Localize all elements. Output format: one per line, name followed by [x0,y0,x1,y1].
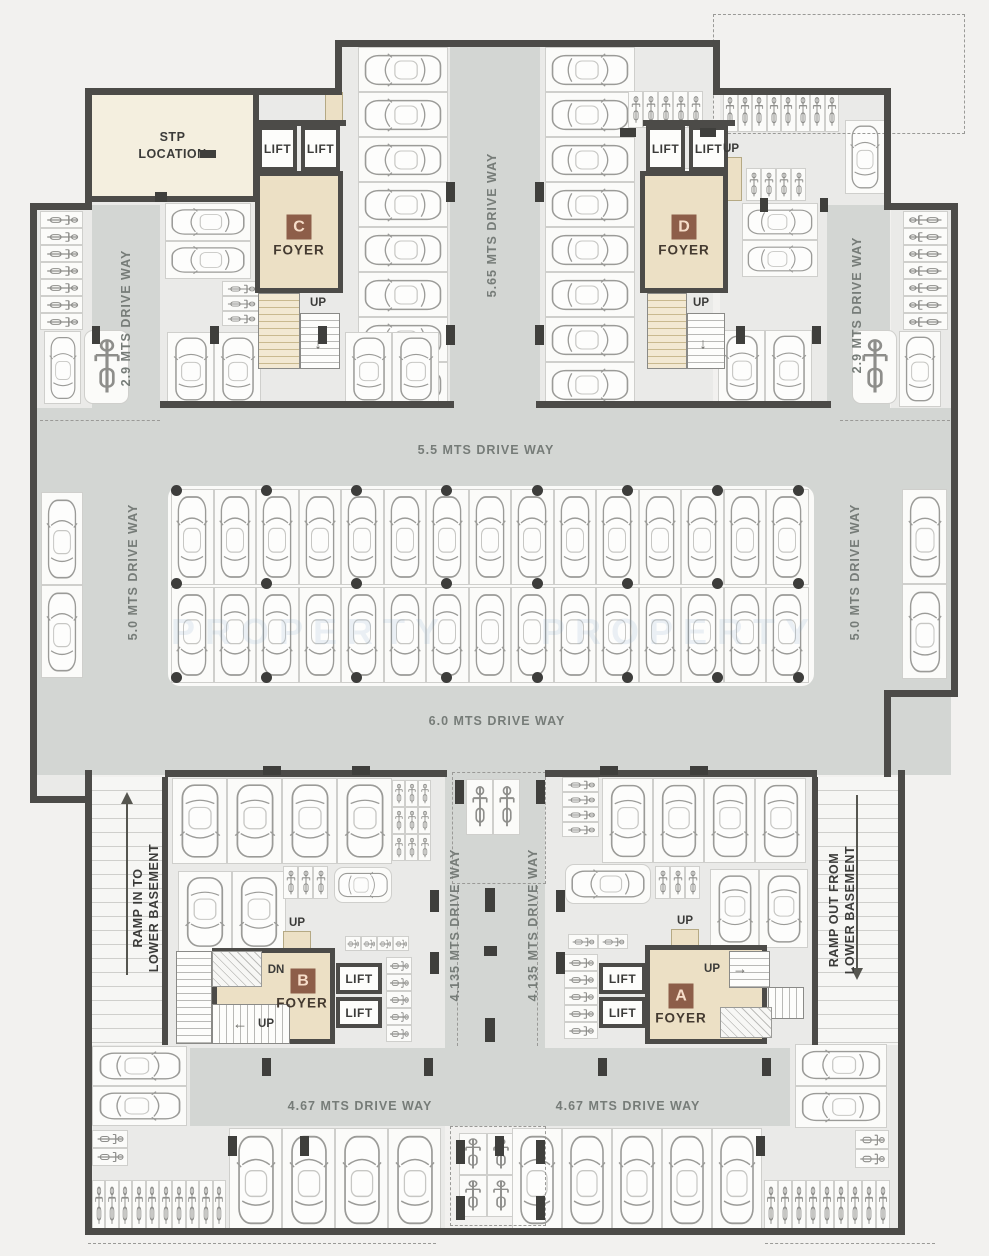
bike-icon [905,247,946,261]
parking-slot [724,489,767,585]
bike-icon [393,781,403,805]
bike-icon [387,1010,410,1024]
parking-slot [172,778,227,864]
wall [160,401,342,408]
parking-group [568,934,628,949]
bike-icon [566,973,597,987]
car-icon [363,52,444,88]
column-stub [155,192,167,202]
bike-icon [821,1183,832,1230]
bike-icon [315,868,327,898]
column-stub [446,325,455,345]
column-stub [210,326,219,344]
bike-icon [134,1183,145,1230]
parking-slot [639,489,682,585]
column-stub [430,890,439,912]
parking-slot [92,1130,128,1148]
parking-slot [712,1128,762,1232]
car-icon [550,52,631,88]
bike-icon [42,264,81,278]
car-icon [337,871,389,900]
stairs-b-column [176,951,212,1044]
column-stub [556,890,565,912]
parking-slot [388,1128,441,1232]
wall [162,777,168,1045]
column-stub [820,198,828,212]
bike-icon [905,264,946,278]
parking-group [178,871,286,953]
column-stub [535,325,544,345]
wall [253,120,346,126]
parking-slot [167,332,214,406]
car-icon [473,592,507,678]
parking-slot [564,1005,598,1022]
lift-d-1: LIFT [646,126,685,171]
column-dot [261,578,272,589]
parking-slot [392,780,405,807]
car-icon [234,1133,276,1227]
car-icon [363,232,444,268]
parking-slot [256,489,299,585]
parking-slot [358,47,448,92]
parking-slot [418,807,431,834]
parking-slot [612,1128,662,1232]
bike-icon [387,1027,410,1041]
bike-icon [564,809,597,821]
column-stub [598,1058,607,1076]
column-dot [171,578,182,589]
wall [545,770,817,777]
parking-slot [214,489,257,585]
parking-slot [392,834,405,861]
car-icon [600,494,634,580]
parking-group [283,866,328,899]
bike-icon [214,1183,225,1230]
bike-icon [600,936,627,948]
bike-icon [42,298,81,312]
foyer-b-up-label: UP [289,917,305,929]
column-dot [441,578,452,589]
wall [884,88,891,210]
parking-group [742,203,818,277]
bike-icon [419,835,429,859]
wall [713,40,720,95]
stairs-d-up-label: UP [693,297,709,309]
car-icon [550,277,631,313]
foyer-a-label: FOYER [655,1011,707,1026]
parking-slot [40,228,83,245]
parking-slot [40,211,83,228]
parking-slot [418,834,431,861]
parking-group [602,778,806,863]
car-icon [764,873,803,944]
bike-icon [835,1183,846,1230]
parking-slot [545,227,635,272]
foyer-a-up-label: UP [677,915,693,927]
bike-icon [393,808,403,832]
wall [92,196,260,202]
parking-slot [564,988,598,1005]
car-icon [746,207,814,237]
parking-slot [776,168,791,201]
column-stub [228,1136,237,1156]
column-stub [690,766,708,775]
ramp-in-label: RAMP IN TOLOWER BASEMENT [130,844,162,973]
bike-icon [406,781,416,805]
parking-group [386,957,412,1042]
column-dot [622,485,633,496]
parking-slot [848,1180,862,1232]
stairs-b-up-label: UP [258,1018,274,1030]
parking-slot [358,227,448,272]
parking-slot [213,1180,226,1232]
column-stub [762,1058,771,1076]
parking-slot [511,489,554,585]
car-icon [907,589,943,675]
parking-slot [806,1180,820,1232]
parking-slot [40,245,83,262]
car-icon [397,336,435,403]
column-dot [351,485,362,496]
lift-a-1: LIFT [599,963,646,994]
parking-slot [165,241,251,279]
car-icon [907,494,943,580]
parking-slot [598,934,628,949]
car-icon [288,782,332,859]
bike-icon [905,315,946,329]
bike-icon [566,990,597,1004]
bike-icon [187,1183,198,1230]
wall [253,95,259,202]
lift-label: LIFT [609,972,636,986]
parking-slot [903,262,948,279]
bike-icon [94,1150,126,1164]
parking-slot [392,807,405,834]
lift-label: LIFT [652,142,679,156]
bike-icon [793,170,805,200]
wall [643,120,735,126]
bike-icon [564,794,597,806]
column-dot [441,672,452,683]
column-stub [485,1018,495,1042]
car-icon [183,875,226,949]
parking-group [229,1128,441,1232]
parking-slot [105,1180,118,1232]
driveway-5-0-left-label: 5.0 MTS DRIVE WAY [126,504,140,641]
column-stub [424,1058,433,1076]
foyer-a-badge: A [669,984,694,1009]
bike-icon [42,213,81,227]
lift-b-2: LIFT [336,997,382,1028]
bike-icon [300,868,312,898]
parking-slot [855,1149,889,1168]
driveway-6-0-label: 6.0 MTS DRIVE WAY [429,714,566,728]
parking-group [92,1180,226,1232]
watermark-text: PROPERTY [541,611,819,653]
stairs-b-arrow-icon: ← [233,1016,248,1033]
parking-slot [40,279,83,296]
parking-slot [562,1128,612,1232]
bike-icon [147,1183,158,1230]
parking-slot [562,792,599,807]
bike-icon [564,824,597,836]
car-icon [178,782,222,859]
parking-group [565,864,651,904]
column-stub [484,946,497,956]
parking-group [345,332,439,406]
bike-icon [387,976,410,990]
column-dot [261,672,272,683]
parking-slot [172,1180,185,1232]
parking-group [171,489,809,585]
parking-group [44,331,81,404]
parking-group [903,211,948,330]
bike-icon [378,938,392,950]
car-icon [363,97,444,133]
stairs-b-hatch [212,951,262,987]
foyer-d-entry-up-label: UP [723,143,739,155]
car-icon [233,782,277,859]
car-icon [169,245,246,275]
car-icon [175,494,209,580]
bike-icon [566,1007,597,1021]
column-dot [793,672,804,683]
parking-slot [902,489,947,584]
parking-slot [227,778,282,864]
bike-icon [406,808,416,832]
column-dot [793,485,804,496]
parking-slot [358,92,448,137]
bike-icon [393,835,403,859]
parking-slot [40,313,83,330]
stp-location-room: STP LOCATION [92,95,253,196]
bike-icon [849,1183,860,1230]
column-stub [352,766,370,775]
car-icon [800,1048,883,1082]
parking-slot [165,203,251,241]
parking-slot [704,778,755,863]
parking-slot [562,807,599,822]
column-stub [262,1058,271,1076]
parking-slot [564,1022,598,1039]
column-stub [485,888,495,912]
parking-group [855,1130,889,1168]
parking-slot [386,1008,412,1025]
parking-slot [545,137,635,182]
parking-slot [41,492,83,585]
wall [30,796,90,803]
wall [713,88,891,95]
bike-icon [394,938,408,950]
dashed-bottom-left [88,1243,436,1244]
parking-slot [159,1180,172,1232]
driveway-4-67-left-label: 4.67 MTS DRIVE WAY [288,1099,433,1113]
parking-slot [899,331,941,407]
bike-icon [778,170,790,200]
parking-slot [681,489,724,585]
parking-slot [602,778,653,863]
parking-slot [222,311,260,326]
dashed-outline-top-right [713,14,965,134]
column-dot [622,672,633,683]
parking-slot [564,954,598,971]
parking-slot [44,331,81,404]
parking-slot [384,489,427,585]
lift-c-1: LIFT [258,126,297,171]
stp-location-label: STP LOCATION [138,129,206,163]
bike-icon [362,938,376,950]
parking-slot [628,91,643,128]
column-dot [532,672,543,683]
lift-c-2: LIFT [301,126,340,171]
dashed-band-top-left [40,420,160,421]
parking-group [345,936,409,951]
foyer-c-badge: C [287,215,312,240]
parking-slot [685,866,700,899]
parking-slot [742,240,818,277]
ramp-out-label: RAMP OUT FROMLOWER BASEMENT [826,846,858,975]
parking-slot [361,936,377,951]
parking-slot [199,1180,212,1232]
bike-icon [224,313,258,325]
parking-slot [119,1180,132,1232]
column-stub [456,1196,465,1220]
column-stub [456,1140,465,1164]
parking-slot [335,1128,388,1232]
car-icon [723,334,761,402]
column-dot [712,485,723,496]
parking-slot [766,489,809,585]
parking-group [718,330,812,406]
car-icon [728,494,762,580]
car-icon [567,1133,607,1227]
wall [884,203,958,210]
parking-slot [232,871,286,953]
car-icon [219,336,257,403]
parking-slot [554,489,597,585]
parking-slot [655,866,670,899]
parking-slot [313,866,328,899]
car-icon [770,494,804,580]
parking-slot [791,168,806,201]
foyer-d-label: FOYER [658,243,710,258]
parking-slot [186,1180,199,1232]
bike-icon [224,283,258,295]
bike-icon [387,993,410,1007]
bike-icon [657,868,669,898]
bike-icon [419,808,429,832]
basement-parking-floor-plan: STP LOCATION LIFT LIFT C FOYER UP ↓ LIFT… [0,0,989,1256]
stairs-d-arrow-icon: ↓ [699,336,707,353]
parking-group [41,492,83,678]
parking-group [92,1046,187,1126]
bike-icon [566,1024,597,1038]
column-dot [793,578,804,589]
car-icon [45,497,79,581]
column-dot [622,578,633,589]
car-icon [709,782,750,859]
driveway-4-135-left-label: 4.135 MTS DRIVE WAY [448,849,462,1002]
bike-icon [42,281,81,295]
car-icon [345,494,379,580]
parking-slot [596,489,639,585]
dashed-band-top-right [840,420,950,421]
parking-group [899,331,941,407]
parking-group [562,777,599,837]
driveway-4-135-right-label: 4.135 MTS DRIVE WAY [526,849,540,1002]
ramp-in-arrowhead-icon [121,792,133,804]
bike-icon [877,1183,888,1230]
parking-slot [545,317,635,362]
car-icon [363,277,444,313]
car-icon [717,1133,757,1227]
parking-slot [377,936,393,951]
parking-slot [426,489,469,585]
parking-slot [903,245,948,262]
parking-slot [755,778,806,863]
parking-slot [469,587,512,683]
column-stub [263,766,281,775]
wall [30,203,92,210]
parking-slot [710,869,759,948]
car-icon [760,782,801,859]
bike-icon [765,1183,776,1230]
car-icon [343,782,387,859]
parking-slot [358,182,448,227]
column-stub [455,780,464,804]
ramp-in-arrow-icon [126,800,128,975]
parking-slot [469,489,512,585]
foyer-b-dn-label: DN [268,964,285,976]
bike-icon [687,868,699,898]
wall [342,401,454,408]
car-icon [260,494,294,580]
parking-slot [298,866,313,899]
car-icon [550,322,631,358]
driveway-5-65-label: 5.65 MTS DRIVE WAY [485,153,499,298]
wall [335,40,342,95]
parking-group [710,869,808,948]
car-icon [550,97,631,133]
parking-slot [393,936,409,951]
parking-slot [764,1180,778,1232]
car-icon [303,494,337,580]
parking-slot [778,1180,792,1232]
column-dot [712,672,723,683]
bike-icon [201,1183,212,1230]
parking-group [392,780,431,861]
column-stub [736,326,745,344]
parking-group [40,211,83,330]
bike-icon [905,213,946,227]
lift-label: LIFT [609,1006,636,1020]
parking-slot [386,991,412,1008]
parking-slot [405,834,418,861]
column-dot [261,485,272,496]
column-stub [536,1196,545,1220]
lift-a-2: LIFT [599,997,646,1028]
parking-slot [92,1180,105,1232]
bike-icon [905,230,946,244]
parking-slot [345,332,392,406]
parking-slot [670,866,685,899]
car-icon [515,494,549,580]
stairs-c-left [258,293,300,369]
parking-group [764,1180,890,1232]
wall [30,203,37,803]
driveway-2-9-left-label: 2.9 MTS DRIVE WAY [119,250,133,387]
parking-slot [545,272,635,317]
